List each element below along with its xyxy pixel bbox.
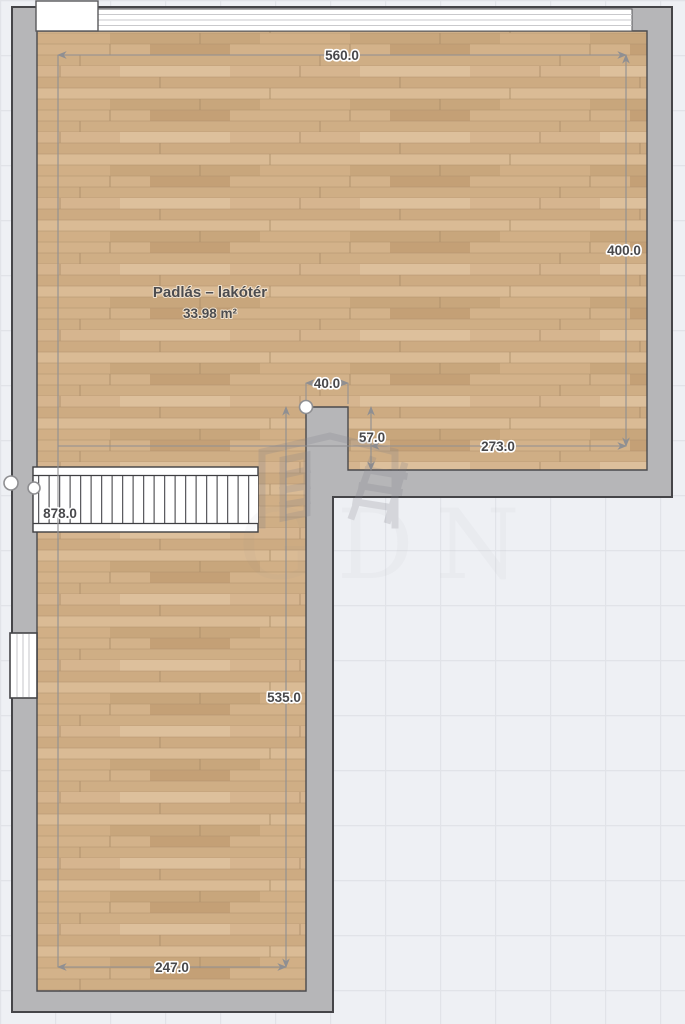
floor-plan: 560.0 400.0 273.0 40.0 57.0 878.0 535.0 …: [0, 0, 685, 1024]
dim-label-top: 560.0: [325, 48, 359, 63]
floor-plan-canvas: 560.0 400.0 273.0 40.0 57.0 878.0 535.0 …: [0, 0, 685, 1024]
staircase: [33, 467, 258, 532]
node-notch-corner: [300, 401, 313, 414]
top-window: [45, 9, 632, 31]
dim-label-stairs: 878.0: [43, 506, 77, 521]
left-window: [10, 633, 37, 698]
dim-label-bottom: 247.0: [155, 960, 189, 975]
room-area: 33.98 m²: [183, 306, 238, 321]
dormer-window: [36, 1, 98, 31]
watermark-text: GDN: [238, 489, 542, 601]
node-wall-left: [4, 476, 18, 490]
room-name: Padlás – lakótér: [153, 284, 267, 301]
dim-label-273: 273.0: [481, 439, 515, 454]
dim-label-535: 535.0: [267, 690, 301, 705]
node-stair-left: [28, 482, 40, 494]
dim-label-right: 400.0: [607, 243, 641, 258]
dim-label-40: 40.0: [314, 376, 340, 391]
